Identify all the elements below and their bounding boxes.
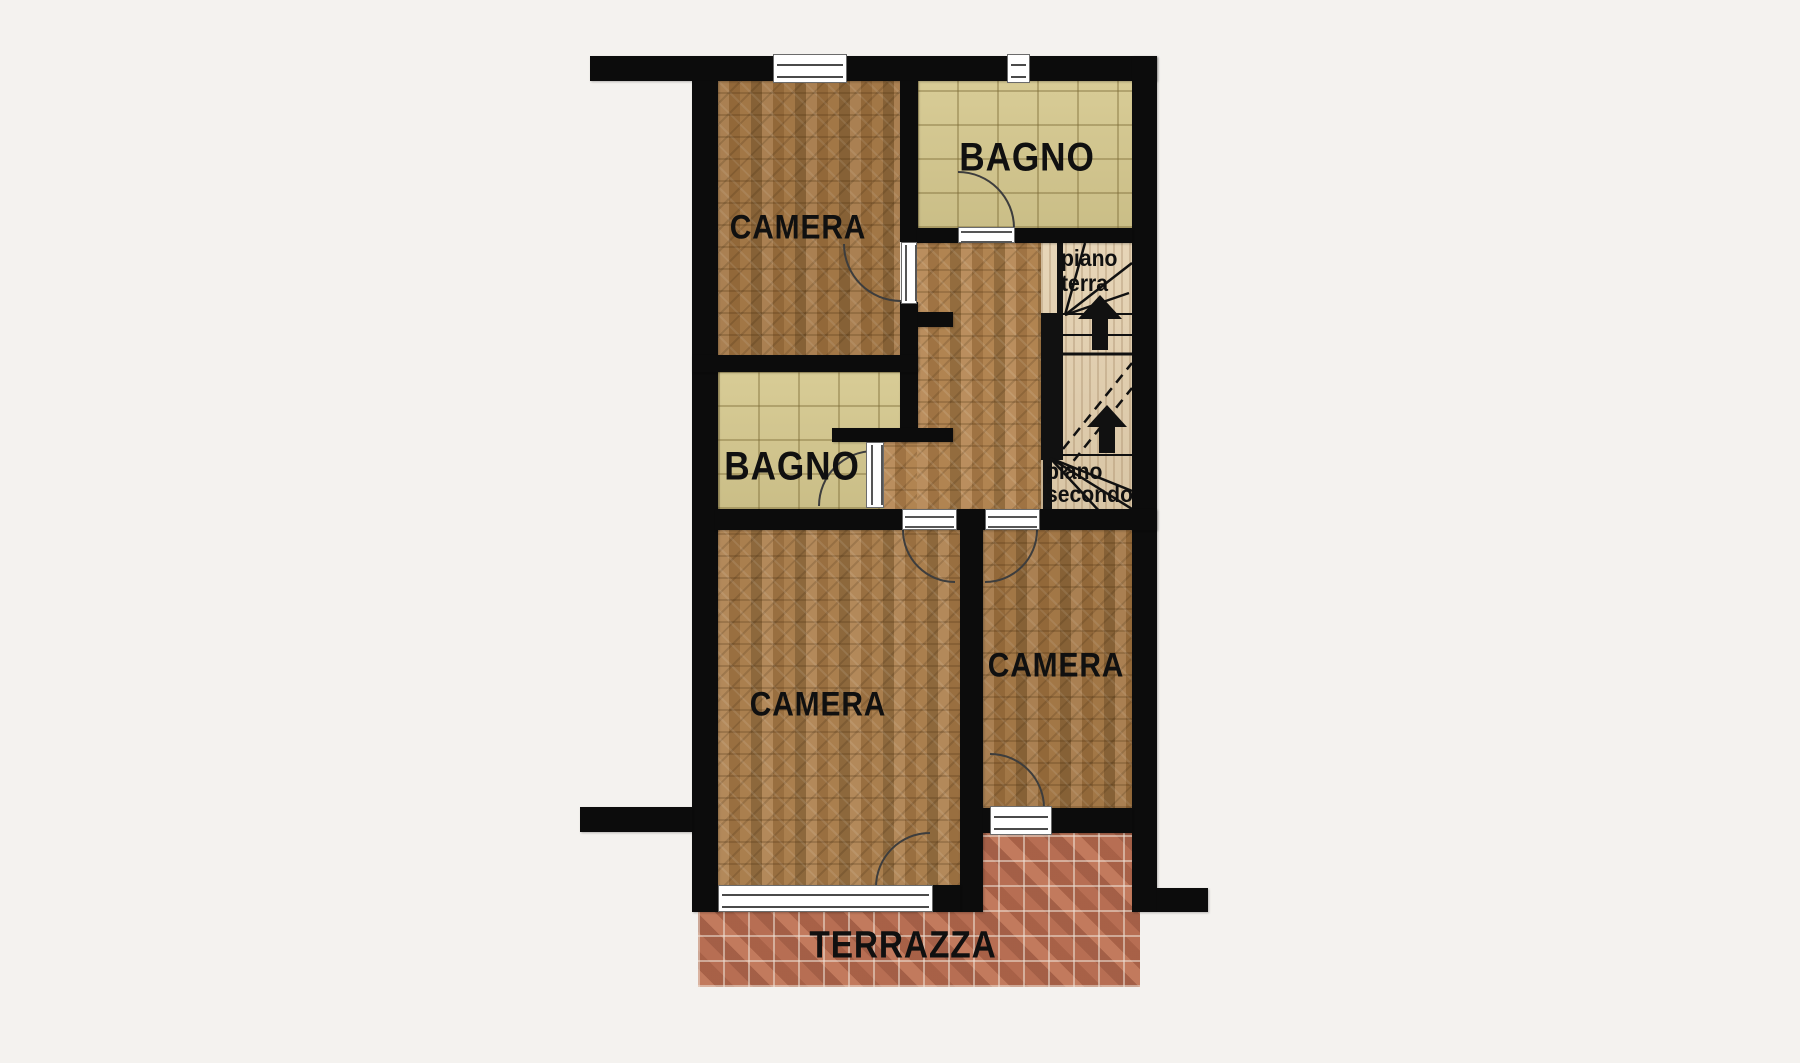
door-camera-br	[985, 509, 1040, 530]
floor-plan-canvas: piano terra piano secondo CAMERA BAGNO B…	[0, 0, 1800, 1063]
stair-label-piano-terra: piano terra	[1061, 246, 1117, 296]
wall-exterior-top	[590, 56, 1157, 81]
wall-camera-top-right-upper	[900, 81, 918, 242]
stair-side-wall	[1041, 313, 1063, 460]
wall-camera-bagno-divider	[692, 355, 918, 372]
window-terrace-right	[990, 806, 1052, 835]
wall-bagno-mid-stub	[832, 428, 953, 442]
wall-exterior-left	[692, 81, 718, 912]
room-label-camera-bottom-right: CAMERA	[988, 647, 1125, 686]
wall-bagno-top-bottom	[917, 228, 1132, 243]
stair-label-line: piano	[1061, 246, 1117, 271]
stair-label-piano-secondo: piano secondo	[1046, 460, 1133, 506]
room-label-bagno-mid: BAGNO	[724, 445, 859, 490]
wall-party-stub-right	[1157, 888, 1208, 912]
stair-label-line: piano	[1046, 460, 1133, 483]
door-camera-bl	[902, 509, 957, 530]
wall-hall-stub	[918, 312, 953, 327]
stair-label-line: secondo	[1046, 483, 1133, 506]
wall-party-stub-left	[580, 807, 692, 832]
hallway-floor-extension	[884, 442, 917, 513]
wall-exterior-right	[1132, 56, 1157, 912]
stair-label-line: terra	[1061, 271, 1117, 296]
room-label-camera-bottom-left: CAMERA	[750, 686, 887, 725]
window-terrace-left	[718, 885, 933, 912]
wall-camera-top-right-lower	[900, 302, 918, 442]
door-bagno-mid	[866, 442, 884, 508]
door-bagno-top	[958, 227, 1015, 243]
door-camera-top	[901, 242, 917, 304]
window-top-right-small	[1007, 54, 1030, 83]
wall-between-cameras	[960, 509, 983, 912]
stair-up-arrow-icon	[1078, 295, 1122, 350]
hallway-floor	[917, 243, 1041, 513]
room-label-terrazza: TERRAZZA	[809, 925, 996, 968]
stair-up-arrow-icon	[1087, 405, 1127, 453]
room-label-bagno-top: BAGNO	[959, 136, 1094, 181]
window-top-left	[773, 54, 847, 83]
room-label-camera-top: CAMERA	[730, 209, 867, 248]
